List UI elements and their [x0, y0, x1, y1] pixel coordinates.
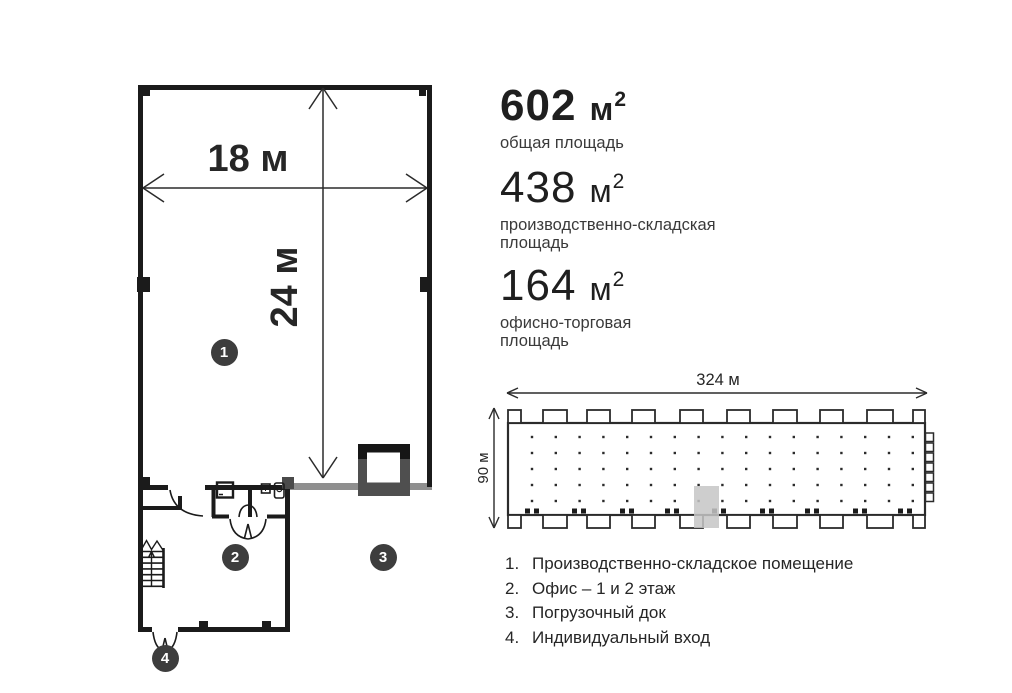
roof-tab-bottom	[508, 515, 521, 528]
gate-marker	[629, 509, 634, 514]
marker-dock: 3	[370, 544, 397, 571]
grid-dot	[721, 484, 723, 486]
grid-dot	[912, 436, 914, 438]
side-dock-door	[926, 463, 934, 472]
grid-dot	[912, 452, 914, 454]
grid-dot	[745, 500, 747, 502]
grid-dot	[721, 468, 723, 470]
grid-dot	[531, 500, 533, 502]
grid-dot	[816, 468, 818, 470]
stat-value: 602 м2	[500, 78, 627, 131]
gate-marker	[898, 509, 903, 514]
roof-tab-bottom	[773, 515, 797, 528]
grid-dot	[531, 436, 533, 438]
stairs	[140, 541, 164, 589]
grid-dot	[555, 484, 557, 486]
grid-dot	[793, 436, 795, 438]
grid-dot	[793, 500, 795, 502]
gate-marker	[907, 509, 912, 514]
grid-dot	[602, 484, 604, 486]
dock-opening	[367, 453, 400, 483]
gate-marker	[805, 509, 810, 514]
grid-dot	[626, 452, 628, 454]
grid-dot	[721, 500, 723, 502]
roof-tab-top	[913, 410, 925, 423]
grid-dot	[531, 452, 533, 454]
stat-value: 164 м2	[500, 258, 670, 311]
grid-dot	[674, 484, 676, 486]
grid-dot	[840, 468, 842, 470]
gate-marker	[525, 509, 530, 514]
legend-item: 3. Погрузочный док	[505, 604, 853, 622]
legend-item: 2. Офис – 1 и 2 этаж	[505, 580, 853, 598]
grid-dot	[721, 436, 723, 438]
grid-dot	[578, 468, 580, 470]
roof-tab-top	[773, 410, 797, 423]
stat-label: производственно-складская площадь	[500, 216, 740, 252]
grid-dot	[578, 452, 580, 454]
grid-dot	[674, 468, 676, 470]
grid-dot	[578, 500, 580, 502]
width-dimension-label: 18 м	[208, 138, 289, 180]
gate-marker	[760, 509, 765, 514]
grid-dot	[793, 468, 795, 470]
height-dimension-label: 24 м	[264, 247, 306, 328]
grid-dot	[769, 468, 771, 470]
grid-dot	[674, 436, 676, 438]
grid-dot	[626, 484, 628, 486]
grid-dot	[888, 500, 890, 502]
grid-dot	[626, 436, 628, 438]
grid-dot	[674, 500, 676, 502]
grid-dot	[793, 452, 795, 454]
site-plan: 324 м 90 м	[475, 371, 934, 528]
grid-dot	[531, 468, 533, 470]
roof-tab-bottom	[632, 515, 655, 528]
gate-marker	[814, 509, 819, 514]
roof-tab-top	[587, 410, 610, 423]
roof-tab-bottom	[543, 515, 567, 528]
grid-dot	[888, 484, 890, 486]
gate-marker	[620, 509, 625, 514]
grid-dot	[840, 500, 842, 502]
roof-tab-bottom	[587, 515, 610, 528]
grid-dot	[578, 436, 580, 438]
grid-dot	[626, 468, 628, 470]
grid-dot	[626, 500, 628, 502]
grid-dot	[864, 468, 866, 470]
grid-dot	[769, 484, 771, 486]
gate-marker	[581, 509, 586, 514]
grid-dot	[555, 436, 557, 438]
gate-marker	[862, 509, 867, 514]
side-dock-door	[926, 493, 934, 502]
grid-dot	[555, 452, 557, 454]
grid-dot	[650, 468, 652, 470]
grid-dot	[816, 500, 818, 502]
grid-dot	[864, 436, 866, 438]
stat-warehouse-area: 438 м2 производственно-складская площадь	[500, 160, 740, 252]
side-dock-door	[926, 473, 934, 482]
grid-dot	[864, 500, 866, 502]
stat-value: 438 м2	[500, 160, 740, 213]
grid-dot	[745, 484, 747, 486]
marker-entrance: 4	[152, 645, 179, 672]
grid-dot	[697, 452, 699, 454]
site-width-label: 324 м	[696, 371, 739, 389]
grid-dot	[888, 436, 890, 438]
gate-marker	[572, 509, 577, 514]
side-dock-door	[926, 453, 934, 462]
grid-dot	[650, 452, 652, 454]
grid-dot	[840, 436, 842, 438]
grid-dot	[602, 468, 604, 470]
grid-dot	[697, 484, 699, 486]
gate-marker	[674, 509, 679, 514]
roof-tab-bottom	[727, 515, 750, 528]
stat-label: общая площадь	[500, 134, 627, 152]
grid-dot	[650, 500, 652, 502]
grid-dot	[793, 484, 795, 486]
side-dock-door	[926, 443, 934, 452]
roof-tab-top	[727, 410, 750, 423]
grid-dot	[721, 452, 723, 454]
stat-label: офисно-торговая площадь	[500, 314, 670, 350]
grid-dot	[745, 468, 747, 470]
grid-dot	[555, 468, 557, 470]
grid-dot	[816, 452, 818, 454]
grid-dot	[816, 436, 818, 438]
grid-dot	[769, 500, 771, 502]
grid-dot	[912, 500, 914, 502]
washroom-door-arcs	[230, 519, 266, 539]
interior-walls	[138, 487, 290, 517]
grid-dot	[769, 452, 771, 454]
grid-dot	[864, 452, 866, 454]
grid-dot	[769, 436, 771, 438]
office-door-arc	[170, 490, 203, 516]
legend-item: 4. Индивидуальный вход	[505, 629, 853, 647]
roof-tab-bottom	[867, 515, 893, 528]
grid-dot	[555, 500, 557, 502]
stat-total-area: 602 м2 общая площадь	[500, 78, 627, 152]
stat-office-area: 164 м2 офисно-торговая площадь	[500, 258, 670, 350]
grid-dot	[840, 452, 842, 454]
roof-tab-bottom	[913, 515, 925, 528]
grid-dot	[650, 436, 652, 438]
grid-dot	[602, 436, 604, 438]
legend-item: 1. Производственно-складское помещение	[505, 555, 853, 573]
grid-dot	[650, 484, 652, 486]
gate-marker	[853, 509, 858, 514]
roof-tab-bottom	[820, 515, 843, 528]
roof-tab-top	[632, 410, 655, 423]
grid-dot	[697, 436, 699, 438]
grid-dot	[602, 452, 604, 454]
marker-office: 2	[222, 544, 249, 571]
side-dock-door	[926, 483, 934, 492]
grid-dot	[888, 452, 890, 454]
grid-dot	[912, 484, 914, 486]
gate-marker	[534, 509, 539, 514]
gate-marker	[721, 509, 726, 514]
grid-dot	[578, 484, 580, 486]
legend: 1. Производственно-складское помещение 2…	[505, 555, 853, 653]
grid-dot	[697, 468, 699, 470]
marker-warehouse: 1	[211, 339, 238, 366]
grid-dot	[745, 436, 747, 438]
roof-tab-top	[543, 410, 567, 423]
grid-dot	[674, 452, 676, 454]
site-height-label: 90 м	[475, 452, 492, 483]
gate-marker	[769, 509, 774, 514]
grid-dot	[745, 452, 747, 454]
highlighted-unit	[694, 486, 719, 528]
roof-tab-top	[680, 410, 703, 423]
grid-dot	[840, 484, 842, 486]
roof-tab-top	[820, 410, 843, 423]
roof-tab-top	[867, 410, 893, 423]
grid-dot	[864, 484, 866, 486]
grid-dot	[912, 468, 914, 470]
grid-dot	[602, 500, 604, 502]
grid-dot	[531, 484, 533, 486]
grid-dot	[888, 468, 890, 470]
gate-marker	[665, 509, 670, 514]
loading-dock	[358, 444, 410, 496]
grid-dot	[816, 484, 818, 486]
roof-tab-top	[508, 410, 521, 423]
side-dock-door	[926, 433, 934, 442]
